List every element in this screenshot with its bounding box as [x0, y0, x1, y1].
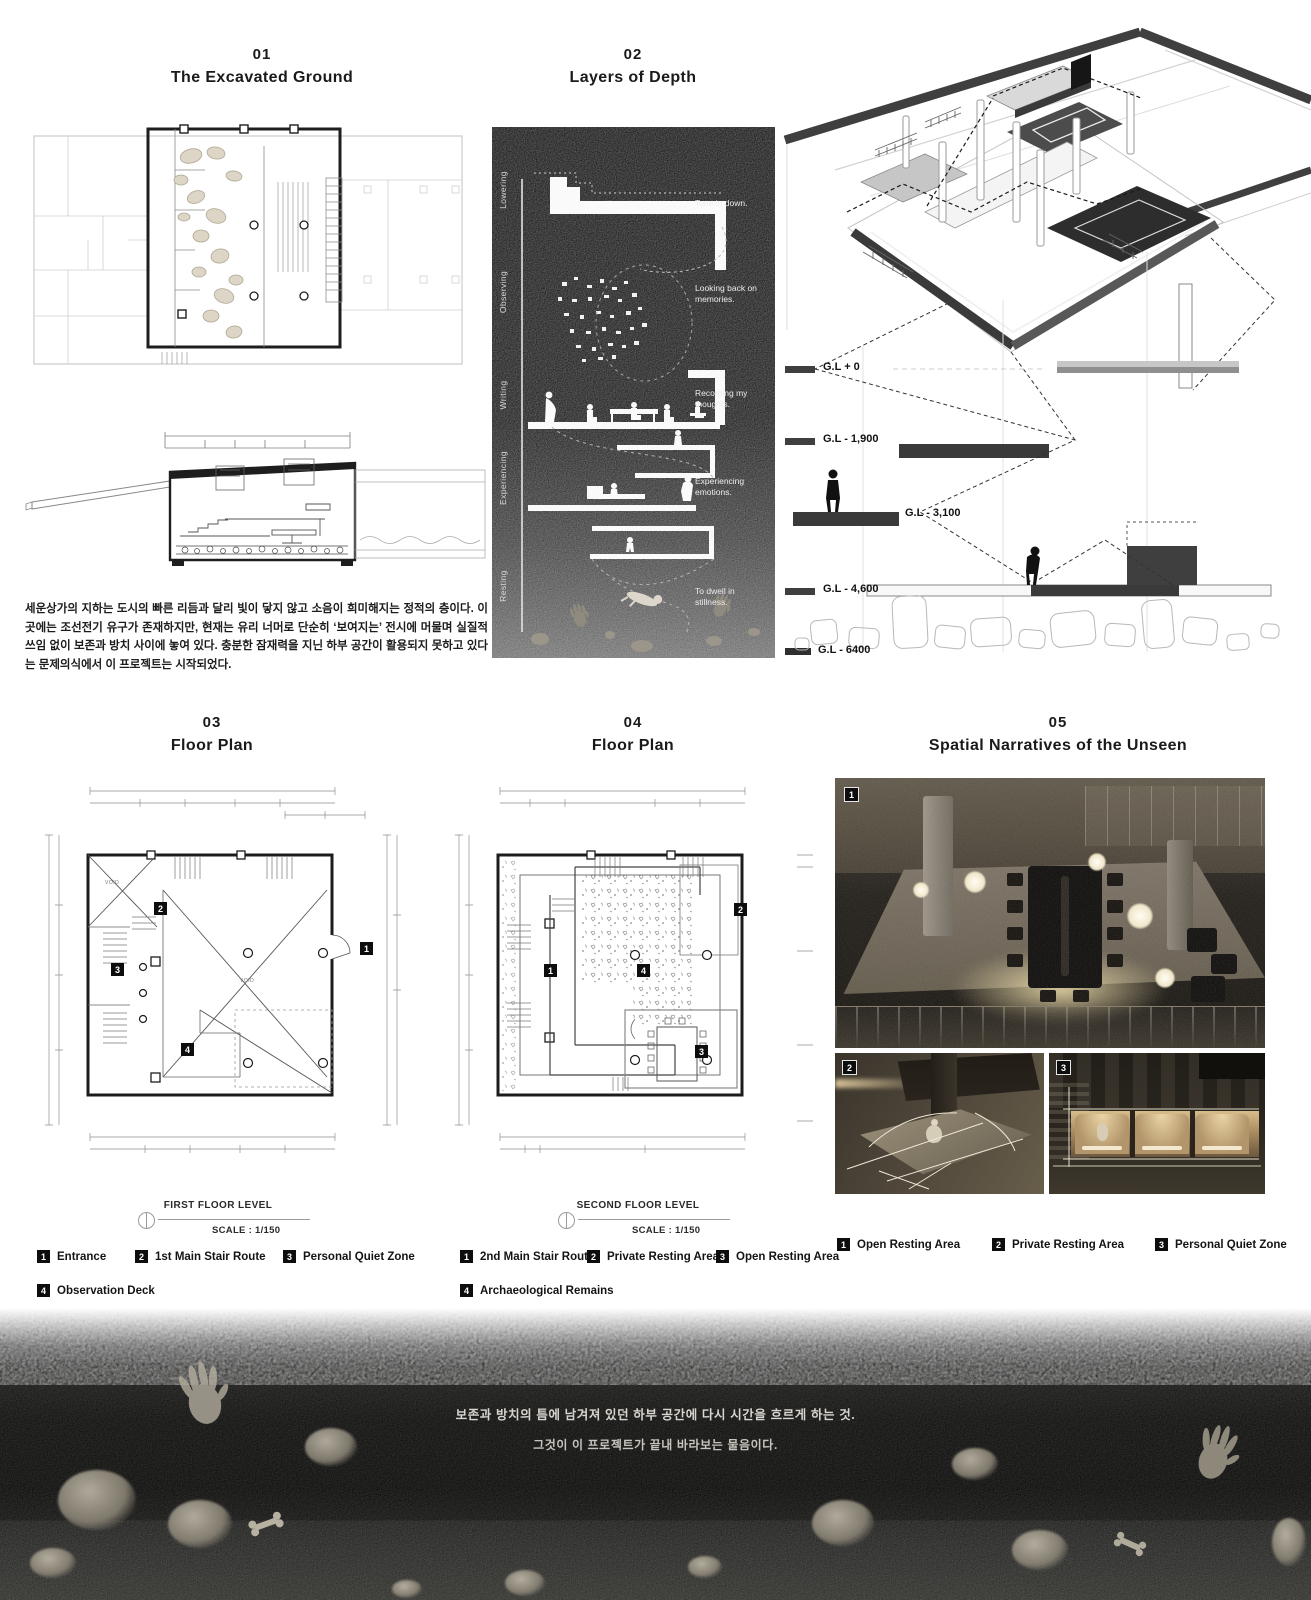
bottom-hatch	[162, 352, 187, 364]
legend03-item-4: 4 Observation Deck	[37, 1284, 155, 1297]
panel04-number: 04	[433, 712, 833, 734]
legend03-chip-4: 4	[37, 1284, 50, 1297]
render-personal-quiet-zone: 3	[1049, 1053, 1265, 1194]
closing-statement-line1: 보존과 방치의 틈에 남겨져 있던 하부 공간에 다시 시간을 흐르게 하는 것…	[0, 1404, 1311, 1423]
buried-stone	[30, 1548, 76, 1578]
plan03-scale: SCALE : 1/150	[212, 1225, 280, 1236]
canopy	[32, 481, 170, 509]
buried-stone	[505, 1570, 545, 1596]
panel01-title: The Excavated Ground	[62, 66, 462, 89]
level-label-gl1900: G.L - 1,900	[823, 433, 878, 445]
level-bars	[785, 361, 1271, 655]
panel02-number: 02	[433, 44, 833, 66]
buried-stone	[1272, 1518, 1306, 1566]
plan03-caption: FIRST FLOOR LEVEL	[128, 1200, 308, 1211]
legend03-item-2: 2 1st Main Stair Route	[135, 1250, 266, 1263]
plan03-datum-symbol	[138, 1212, 155, 1229]
dimension-lines	[165, 432, 350, 448]
bone-silhouette	[1100, 1524, 1160, 1564]
panel05-title: Spatial Narratives of the Unseen	[858, 734, 1258, 757]
level-label-gl4600: G.L - 4,600	[823, 583, 878, 595]
plan04-marker-4: 4	[637, 964, 650, 977]
render-private-resting-area: 2	[835, 1053, 1044, 1194]
panel01-header: 01 The Excavated Ground	[62, 44, 462, 89]
panel05-number: 05	[858, 712, 1258, 734]
stage-label-observing: Observing	[498, 257, 508, 327]
annotation-observing: Looking back on memories.	[695, 283, 767, 306]
right-extension	[355, 470, 485, 558]
buried-stone	[58, 1470, 136, 1530]
legend04-item-4: 4 Archaeological Remains	[460, 1284, 614, 1297]
level-label-gl3100: G.L - 3,100	[905, 507, 960, 519]
stage-label-writing: Writing	[498, 360, 508, 430]
legend04-chip-2: 2	[587, 1250, 600, 1263]
panel03-number: 03	[12, 712, 412, 734]
legend04-chip-4: 4	[460, 1284, 473, 1297]
entrance-door	[329, 935, 350, 959]
guide-lines	[835, 1053, 1044, 1194]
panel04-title: Floor Plan	[433, 734, 833, 757]
panel03-header: 03 Floor Plan	[12, 712, 412, 757]
platforms	[861, 54, 1211, 262]
excavation-boundary	[148, 129, 340, 347]
buried-stone	[688, 1556, 722, 1578]
plan03-marker-1: 1	[360, 942, 373, 955]
render-marker-3: 3	[1057, 1061, 1070, 1074]
plan04-marker-2: 2	[734, 903, 747, 916]
plan03-marker-2: 2	[154, 902, 167, 915]
legend05-item-2: 2 Private Resting Area	[992, 1238, 1124, 1251]
roof-diagonals	[88, 855, 332, 1093]
plan03-marker-4: 4	[181, 1043, 194, 1056]
context-walls	[34, 136, 462, 364]
hand-silhouette	[1168, 1416, 1258, 1496]
bone-silhouette	[236, 1504, 296, 1544]
connector-lines	[815, 238, 1275, 440]
buried-stone	[392, 1580, 422, 1598]
legend03-chip-1: 1	[37, 1250, 50, 1263]
render-marker-2: 2	[843, 1061, 856, 1074]
legend05-chip-3: 3	[1155, 1238, 1168, 1251]
legend05-chip-2: 2	[992, 1238, 1005, 1251]
legend04-chip-3: 3	[716, 1250, 729, 1263]
buried-stone	[812, 1500, 874, 1546]
excavated-ground-section-drawing	[20, 424, 490, 584]
legend03-chip-2: 2	[135, 1250, 148, 1263]
render-noise	[835, 778, 1265, 1048]
plan04-marker-3: 3	[695, 1045, 708, 1058]
annotation-writing: Recording my thoughts.	[695, 388, 763, 411]
excavated-ground-plan-drawing	[28, 120, 483, 378]
plan03-marker-3: 3	[111, 963, 124, 976]
legend04-item-2: 2 Private Resting Area	[587, 1250, 719, 1263]
remains-left-strip	[501, 859, 517, 1091]
legend03-chip-3: 3	[283, 1250, 296, 1263]
legend05-item-3: 3 Personal Quiet Zone	[1155, 1238, 1287, 1251]
section-figure-bowed	[1026, 547, 1040, 586]
plan-boundary	[88, 855, 332, 1095]
plan-stairs	[103, 857, 292, 1043]
level-label-gl6400: G.L - 6400	[818, 644, 870, 656]
legend04-chip-1: 1	[460, 1250, 473, 1263]
buried-stone	[168, 1500, 232, 1548]
first-floor-plan-drawing	[35, 775, 415, 1160]
axonometric-section-diagram	[775, 0, 1311, 675]
void-label-1: VOID	[105, 880, 119, 886]
hand-silhouette	[160, 1356, 250, 1436]
legend04-item-3: 3 Open Resting Area	[716, 1250, 839, 1263]
plan-columns	[140, 949, 328, 1068]
presentation-board: 01 The Excavated Ground	[0, 0, 1311, 1600]
stage-label-lowering: Lowering	[498, 155, 508, 225]
panel02-header: 02 Layers of Depth	[433, 44, 833, 89]
section-figure-standing	[826, 470, 840, 513]
render-open-resting-area: 1	[835, 778, 1265, 1048]
legend04-item-1: 1 2nd Main Stair Route	[460, 1250, 594, 1263]
closing-statement-line2: 그것이 이 프로젝트가 끝내 바라보는 물음이다.	[0, 1436, 1311, 1453]
plan04-marker-1: 1	[544, 964, 557, 977]
plan04-caption-line	[578, 1219, 730, 1220]
render-marker-1: 1	[845, 788, 858, 801]
buried-stone	[1012, 1530, 1068, 1570]
dimensions	[45, 787, 401, 1153]
section-box	[170, 463, 355, 560]
level-label-gl0: G.L + 0	[823, 361, 860, 373]
plan04-caption: SECOND FLOOR LEVEL	[548, 1200, 728, 1211]
stage-label-resting: Resting	[498, 551, 508, 621]
second-floor-plan-drawing	[445, 775, 825, 1160]
ground-band: 보존과 방치의 틈에 남겨져 있던 하부 공간에 다시 시간을 흐르게 하는 것…	[0, 1308, 1311, 1600]
stage-label-experiencing: Experiencing	[498, 443, 508, 513]
panel03-title: Floor Plan	[12, 734, 412, 757]
interior-walls	[88, 890, 332, 1087]
rubble-stones	[795, 595, 1279, 651]
figure-standing	[674, 430, 682, 445]
panel04-header: 04 Floor Plan	[433, 712, 833, 757]
annotation-experiencing: Experiencing emotions.	[695, 476, 767, 499]
level-zigzags	[815, 369, 1173, 585]
legend05-chip-1: 1	[837, 1238, 850, 1251]
column-circles	[250, 221, 308, 300]
panel05-header: 05 Spatial Narratives of the Unseen	[858, 712, 1258, 757]
annotation-resting: To dwell in stillness.	[695, 586, 763, 609]
panel02-title: Layers of Depth	[433, 66, 833, 89]
plan04-scale: SCALE : 1/150	[632, 1225, 700, 1236]
legend03-item-3: 3 Personal Quiet Zone	[283, 1250, 415, 1263]
frame-lines	[1049, 1053, 1265, 1194]
plan04-datum-symbol	[558, 1212, 575, 1229]
legend03-item-1: 1 Entrance	[37, 1250, 106, 1263]
plan03-caption-line	[158, 1219, 310, 1220]
project-statement: 세운상가의 지하는 도시의 빠른 리듬과 달리 빛이 닿지 않고 소음이 희미해…	[25, 600, 488, 675]
panel01-number: 01	[62, 44, 462, 66]
void-label-2: VOID	[240, 978, 254, 984]
legend05-item-1: 1 Open Resting Area	[837, 1238, 960, 1251]
annotation-lowering: Tone in down.	[695, 198, 770, 209]
